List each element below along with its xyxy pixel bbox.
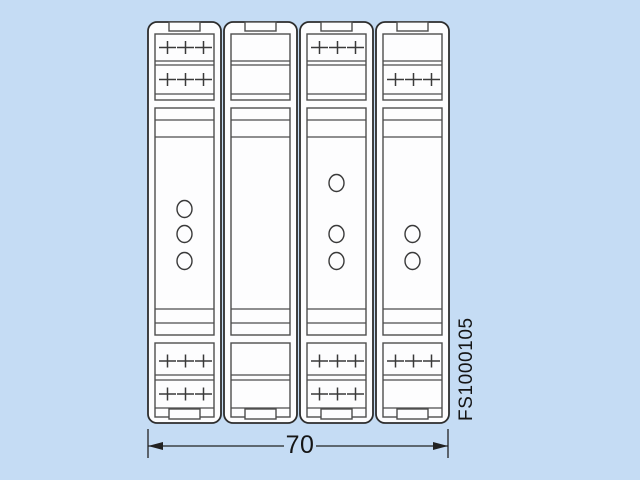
led-indicator-icon bbox=[405, 226, 420, 243]
mounting-tab-top-icon bbox=[169, 22, 200, 31]
led-indicator-icon bbox=[177, 253, 192, 270]
dimension-arrow-left-icon bbox=[148, 442, 163, 450]
mounting-tab-bottom-icon bbox=[245, 409, 276, 419]
mounting-tab-top-icon bbox=[397, 22, 428, 31]
module-outline bbox=[300, 22, 373, 423]
mounting-tab-top-icon bbox=[245, 22, 276, 31]
led-indicator-icon bbox=[177, 201, 192, 218]
din-rail-modules-drawing bbox=[0, 0, 640, 480]
module-4 bbox=[376, 22, 449, 423]
dimension-value-label: 70 bbox=[284, 433, 316, 458]
module-3 bbox=[300, 22, 373, 423]
module-outline bbox=[376, 22, 449, 423]
mounting-tab-bottom-icon bbox=[169, 409, 200, 419]
led-indicator-icon bbox=[177, 226, 192, 243]
mounting-tab-bottom-icon bbox=[397, 409, 428, 419]
module-outline bbox=[224, 22, 297, 423]
part-number-label: FS1000105 bbox=[457, 317, 476, 421]
module-1 bbox=[148, 22, 221, 423]
mounting-tab-top-icon bbox=[321, 22, 352, 31]
led-indicator-icon bbox=[329, 253, 344, 270]
mounting-tab-bottom-icon bbox=[321, 409, 352, 419]
led-indicator-icon bbox=[329, 226, 344, 243]
technical-drawing-canvas: 70 FS1000105 bbox=[0, 0, 640, 480]
module-2 bbox=[224, 22, 297, 423]
module-outline bbox=[148, 22, 221, 423]
led-indicator-icon bbox=[405, 253, 420, 270]
led-indicator-icon bbox=[329, 175, 344, 192]
dimension-arrow-right-icon bbox=[433, 442, 448, 450]
